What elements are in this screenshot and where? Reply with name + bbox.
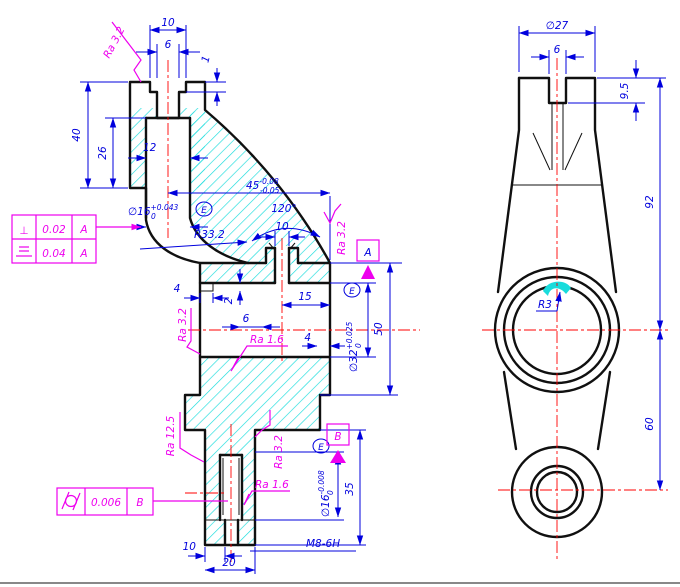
cylindricity-icon	[62, 492, 80, 510]
envelope-letter: E	[318, 443, 324, 453]
dim-fillet-text: R33.2	[194, 229, 225, 241]
datum-b-letter: B	[334, 431, 341, 443]
frame-upper-datum1: A	[79, 224, 87, 236]
dimension-main-bore: ∅32+0.0250 E	[330, 283, 376, 372]
frame-upper-datum2: A	[79, 248, 87, 260]
thread-text: M8-6H	[306, 538, 340, 550]
side-view: ∅27 6 9.5 92 60 R3	[482, 20, 668, 562]
dim-main-bore-text: ∅32+0.0250	[345, 322, 363, 372]
front-section-view: 10 6 1 40 26 12	[12, 17, 420, 574]
dim-slot-outer-text: 10	[161, 17, 175, 29]
dimension-slot-6: 6	[531, 44, 584, 74]
dim-height-60-text: 60	[644, 417, 656, 431]
roughness-lower-right-text: Ra 3.2	[273, 435, 285, 469]
dimension-width-6: 6	[222, 313, 280, 327]
dim-depth-2-text: 2	[223, 297, 235, 304]
dim-width-6-text: 6	[243, 313, 250, 325]
roughness-bottom-text: Ra 1.6	[255, 479, 289, 491]
dim-slot-depth-text: 9.5	[619, 82, 631, 99]
engineering-drawing-sheet: 10 6 1 40 26 12	[0, 0, 680, 587]
roughness-right: Ra 3.2	[324, 204, 348, 255]
symmetry-icon	[16, 247, 32, 256]
dim-stem-text: ∅16-0.0080	[317, 470, 335, 517]
datum-a-flag: A	[357, 240, 379, 279]
dimension-head-height: 40	[71, 82, 128, 188]
perpendicularity-icon: ⊥	[19, 225, 28, 237]
dimension-slot-depth: 9.5	[568, 60, 666, 121]
feature-control-frame-upper: ⊥ 0.02 A 0.04 A	[12, 215, 141, 263]
roughness-mid-text: Ra 1.6	[250, 334, 284, 346]
dim-step-4-text: 4	[174, 283, 181, 295]
dim-bottom-20-text: 20	[222, 557, 236, 569]
dim-offset-15-text: 15	[298, 291, 312, 303]
envelope-letter: E	[201, 206, 207, 216]
dim-wall-4-text: 4	[304, 332, 311, 344]
dimension-height-60: 60	[644, 330, 660, 490]
dim-height-50-text: 50	[373, 322, 385, 336]
dim-head-height-text: 40	[71, 128, 83, 142]
dim-bore-depth-text: 26	[97, 146, 109, 160]
roughness-right-text: Ra 3.2	[336, 221, 348, 255]
envelope-letter: E	[349, 287, 355, 297]
dim-dia-27-text: ∅27	[546, 20, 569, 32]
dim-top-step-text: 1	[199, 54, 212, 64]
dim-slot-inner-text: 6	[165, 39, 172, 51]
roughness-lower-left-text: Ra 12.5	[165, 415, 177, 456]
dim-height-35-text: 35	[344, 482, 356, 496]
dim-bore-width-text: 12	[143, 142, 157, 154]
dimension-bottom-20: 20	[205, 547, 255, 574]
frame-lower-datum: B	[136, 497, 143, 509]
datum-a-triangle-icon	[361, 265, 375, 279]
roughness-top-text: Ra 3.2	[101, 25, 128, 61]
dim-chamfer-width-text: 10	[275, 221, 289, 233]
dimension-height-92: 92	[644, 78, 660, 330]
dim-radius-r3-text: R3	[538, 299, 552, 311]
dimension-wall-4: 4	[302, 332, 345, 346]
frame-upper-value2: 0.04	[42, 248, 65, 260]
dim-bottom-10-text: 10	[183, 541, 197, 553]
roughness-top: Ra 3.2	[101, 22, 141, 82]
dim-height-92-text: 92	[644, 195, 656, 209]
feature-control-frame-lower: 0.006 B	[57, 488, 228, 515]
datum-a-letter: A	[363, 247, 371, 259]
dim-slot-6-text: 6	[554, 44, 561, 56]
dimension-offset-15: 15	[282, 291, 330, 305]
dimension-step-4-left: 4	[174, 283, 229, 303]
dim-chamfer-angle-text: 120°	[271, 203, 296, 215]
roughness-mid-left-text: Ra 3.2	[177, 308, 189, 342]
frame-lower-value: 0.006	[91, 497, 121, 509]
drawing-canvas: 10 6 1 40 26 12	[0, 0, 680, 587]
roughness-mid-left: Ra 3.2	[177, 308, 200, 354]
dimension-slot-inner: 6	[136, 39, 200, 78]
frame-upper-value1: 0.02	[42, 224, 66, 236]
